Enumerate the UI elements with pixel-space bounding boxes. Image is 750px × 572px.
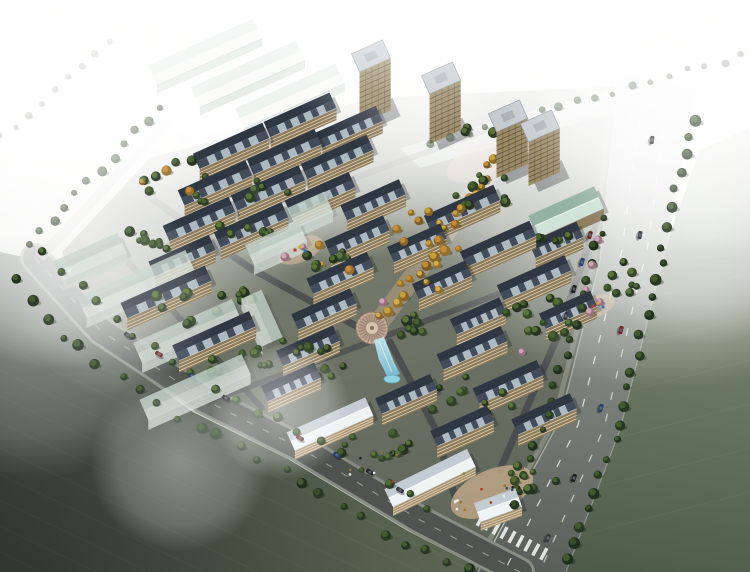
person-dot xyxy=(456,508,459,511)
tree-canopy-highlight xyxy=(430,252,436,258)
tree-canopy-highlight xyxy=(628,268,634,274)
tree-canopy-highlight xyxy=(402,542,407,547)
tree-canopy-highlight xyxy=(477,173,481,177)
tree-canopy-highlight xyxy=(371,451,376,456)
plaza-center-medallion xyxy=(370,326,374,330)
tree-canopy-highlight xyxy=(425,208,430,213)
tree-canopy-highlight xyxy=(546,411,551,416)
person-dot xyxy=(463,472,466,475)
tree-canopy-highlight xyxy=(451,220,456,225)
tree-canopy-highlight xyxy=(549,332,555,338)
tree-canopy-highlight xyxy=(357,512,362,517)
tree-canopy-highlight xyxy=(549,382,554,387)
tree-canopy-highlight xyxy=(434,261,439,266)
tree-canopy-highlight xyxy=(651,275,658,282)
tree-canopy-highlight xyxy=(259,228,265,234)
play-piece xyxy=(592,305,595,308)
tree-canopy-highlight xyxy=(245,224,250,229)
person-dot xyxy=(480,488,483,491)
tree-canopy-highlight xyxy=(645,311,651,317)
tree-canopy-highlight xyxy=(489,155,495,161)
person-dot xyxy=(490,501,493,504)
tree-canopy-highlight xyxy=(297,479,303,485)
aerial-masterplan-rendering xyxy=(0,0,750,572)
tree-canopy-highlight xyxy=(528,442,534,448)
tree-canopy-highlight xyxy=(525,327,530,332)
tree-canopy-highlight xyxy=(376,313,380,317)
tree-canopy-highlight xyxy=(349,434,354,439)
tree-canopy-highlight xyxy=(540,427,544,431)
tree-canopy-highlight xyxy=(579,304,585,310)
tree-canopy-highlight xyxy=(379,298,384,303)
tree-canopy-highlight xyxy=(186,187,191,192)
tree-canopy-highlight xyxy=(315,241,321,247)
person-dot xyxy=(349,473,352,476)
tree-canopy-highlight xyxy=(594,471,599,476)
tree-canopy-highlight xyxy=(634,330,640,336)
tree-canopy-highlight xyxy=(589,241,595,247)
person-dot xyxy=(390,451,393,454)
tree-canopy-highlight xyxy=(193,192,198,197)
tree-canopy-highlight xyxy=(575,523,581,529)
tree-canopy-highlight xyxy=(457,204,463,210)
tree-canopy-highlight xyxy=(379,456,383,460)
tree-canopy-highlight xyxy=(565,352,570,357)
tree-canopy-highlight xyxy=(620,259,625,264)
tree-canopy-highlight xyxy=(429,406,435,412)
person-dot xyxy=(506,487,509,490)
person-dot xyxy=(503,485,506,488)
person-dot xyxy=(381,452,384,455)
play-piece xyxy=(597,302,600,305)
tree-canopy-highlight xyxy=(236,292,241,297)
tree-canopy-highlight xyxy=(402,316,409,323)
tree-canopy-highlight xyxy=(566,336,571,341)
tree-canopy-highlight xyxy=(565,319,570,324)
tree-canopy-highlight xyxy=(589,489,596,496)
person-dot xyxy=(511,486,514,489)
tree-canopy-highlight xyxy=(503,309,508,314)
tree-canopy-highlight xyxy=(522,473,526,477)
tree-canopy-highlight xyxy=(324,344,329,349)
rendering-canvas xyxy=(0,0,750,572)
tree-canopy-highlight xyxy=(616,421,622,427)
tree-canopy-highlight xyxy=(440,246,447,253)
tree-canopy-highlight xyxy=(408,210,412,214)
tree-canopy-highlight xyxy=(613,289,618,294)
tree-canopy-highlight xyxy=(342,442,346,446)
tree-canopy-highlight xyxy=(608,271,614,277)
tree-canopy-highlight xyxy=(482,400,486,404)
tree-canopy-highlight xyxy=(623,384,627,388)
tree-canopy-highlight xyxy=(513,303,519,309)
tree-canopy-highlight xyxy=(489,128,496,135)
tree-canopy-highlight xyxy=(406,440,411,445)
tree-canopy-highlight xyxy=(259,184,264,189)
tree-canopy-highlight xyxy=(530,469,534,473)
tree-canopy-highlight xyxy=(312,264,317,269)
tree-canopy-highlight xyxy=(381,531,387,537)
tree-canopy-highlight xyxy=(453,192,457,196)
play-piece xyxy=(294,249,297,252)
tree-canopy-highlight xyxy=(421,545,427,551)
tree-canopy-highlight xyxy=(479,176,485,182)
tree-canopy-highlight xyxy=(660,260,664,264)
tree-canopy-highlight xyxy=(254,178,258,182)
tree-canopy-highlight xyxy=(508,470,512,474)
tree-canopy-highlight xyxy=(330,255,335,260)
person-dot xyxy=(464,508,467,511)
tree-canopy-highlight xyxy=(314,489,320,495)
tree-canopy-highlight xyxy=(540,320,544,324)
tree-canopy-highlight xyxy=(12,275,18,281)
tree-canopy-highlight xyxy=(468,182,475,189)
tree-canopy-highlight xyxy=(508,403,513,408)
tree-canopy-highlight xyxy=(554,365,560,371)
tree-canopy-highlight xyxy=(341,503,345,507)
tree-canopy-highlight xyxy=(457,388,462,393)
tree-canopy-highlight xyxy=(400,292,406,298)
tree-canopy-highlight xyxy=(406,325,411,330)
tree-canopy-highlight xyxy=(400,238,405,243)
tree-canopy-highlight xyxy=(201,199,206,204)
tree-canopy-highlight xyxy=(634,283,638,287)
tree-canopy-highlight xyxy=(532,326,538,332)
tree-canopy-highlight xyxy=(285,189,289,193)
tree-canopy-highlight xyxy=(250,185,256,191)
tree-canopy-highlight xyxy=(499,389,504,394)
tree-canopy-highlight xyxy=(573,321,579,327)
tree-canopy-highlight xyxy=(561,328,566,333)
tree-canopy-highlight xyxy=(523,310,529,316)
tree-canopy-highlight xyxy=(393,225,398,230)
tree-canopy-highlight xyxy=(384,307,390,313)
tree-canopy-highlight xyxy=(586,308,591,313)
tree-canopy-highlight xyxy=(340,363,344,367)
tree-canopy-highlight xyxy=(426,240,431,245)
person-dot xyxy=(359,457,362,460)
tree-canopy-highlight xyxy=(465,201,471,207)
tree-canopy-highlight xyxy=(424,279,428,283)
play-piece xyxy=(299,246,302,249)
tree-canopy-highlight xyxy=(435,286,440,291)
tree-canopy-highlight xyxy=(585,505,590,510)
tree-canopy-highlight xyxy=(389,429,395,435)
tree-canopy-highlight xyxy=(398,331,403,336)
tree-canopy-highlight xyxy=(511,476,517,482)
tree-canopy-highlight xyxy=(216,222,222,228)
tree-canopy-highlight xyxy=(209,355,214,360)
tree-canopy-highlight xyxy=(424,506,429,511)
plunge-pond xyxy=(384,375,400,383)
tree-canopy-highlight xyxy=(501,175,505,179)
tree-canopy-highlight xyxy=(553,238,557,242)
mist-wisp xyxy=(20,200,220,400)
tree-canopy-highlight xyxy=(415,217,420,222)
tree-canopy-highlight xyxy=(419,328,424,333)
tree-canopy-highlight xyxy=(463,374,467,378)
tree-canopy-highlight xyxy=(553,478,558,483)
tree-canopy-highlight xyxy=(414,319,420,325)
tree-canopy-highlight xyxy=(434,236,440,242)
tree-canopy-highlight xyxy=(26,241,30,245)
tree-canopy-highlight xyxy=(594,236,599,241)
tree-canopy-highlight xyxy=(569,538,576,545)
tree-canopy-highlight xyxy=(565,232,570,237)
tree-canopy-highlight xyxy=(407,490,411,494)
tree-canopy-highlight xyxy=(563,554,570,561)
tree-canopy-highlight xyxy=(437,220,441,224)
tree-canopy-highlight xyxy=(265,231,269,235)
tree-canopy-highlight xyxy=(202,173,206,177)
play-piece xyxy=(304,250,307,253)
tree-canopy-highlight xyxy=(588,261,593,266)
tree-canopy-highlight xyxy=(619,402,625,408)
top-haze-band xyxy=(0,0,750,95)
person-dot xyxy=(503,495,506,498)
tree-canopy-highlight xyxy=(227,230,232,235)
tree-canopy-highlight xyxy=(546,294,551,299)
tree-canopy-highlight xyxy=(417,271,422,276)
tree-canopy-highlight xyxy=(482,124,486,128)
person-dot xyxy=(454,500,457,503)
tree-canopy-highlight xyxy=(345,266,351,272)
person-dot xyxy=(395,454,398,457)
tree-canopy-highlight xyxy=(649,294,654,299)
tree-canopy-highlight xyxy=(603,457,607,461)
tree-canopy-highlight xyxy=(422,261,428,267)
tree-canopy-highlight xyxy=(410,327,416,333)
tree-canopy-highlight xyxy=(456,246,460,250)
tree-canopy-highlight xyxy=(553,298,559,304)
tree-canopy-highlight xyxy=(397,280,401,284)
tree-canopy-highlight xyxy=(527,455,532,460)
tree-canopy-highlight xyxy=(519,349,524,354)
tree-canopy-highlight xyxy=(629,282,633,286)
person-dot xyxy=(459,501,462,504)
person-dot xyxy=(509,504,512,507)
tree-canopy-highlight xyxy=(626,368,632,374)
tree-canopy-highlight xyxy=(615,436,619,440)
tree-canopy-highlight xyxy=(514,462,520,468)
tree-canopy-highlight xyxy=(385,454,389,458)
person-dot xyxy=(511,488,514,491)
tree-canopy-highlight xyxy=(443,559,448,564)
tree-canopy-highlight xyxy=(465,564,472,571)
tree-canopy-highlight xyxy=(484,162,488,166)
tree-canopy-highlight xyxy=(636,352,642,358)
person-dot xyxy=(349,469,352,472)
tree-canopy-highlight xyxy=(626,289,631,294)
tree-canopy-highlight xyxy=(524,485,530,491)
person-dot xyxy=(373,472,376,475)
tree-canopy-highlight xyxy=(386,480,392,486)
play-piece xyxy=(602,306,605,309)
tree-canopy-highlight xyxy=(406,275,411,280)
tree-canopy-highlight xyxy=(447,397,453,403)
tree-canopy-highlight xyxy=(411,312,416,317)
tree-canopy-highlight xyxy=(604,284,609,289)
person-dot xyxy=(391,480,394,483)
tree-canopy-highlight xyxy=(246,193,252,199)
tree-canopy-highlight xyxy=(394,299,400,305)
tree-canopy-highlight xyxy=(582,276,588,282)
tree-canopy-highlight xyxy=(281,253,286,258)
tree-canopy-highlight xyxy=(453,210,457,214)
tree-canopy-highlight xyxy=(359,467,363,471)
